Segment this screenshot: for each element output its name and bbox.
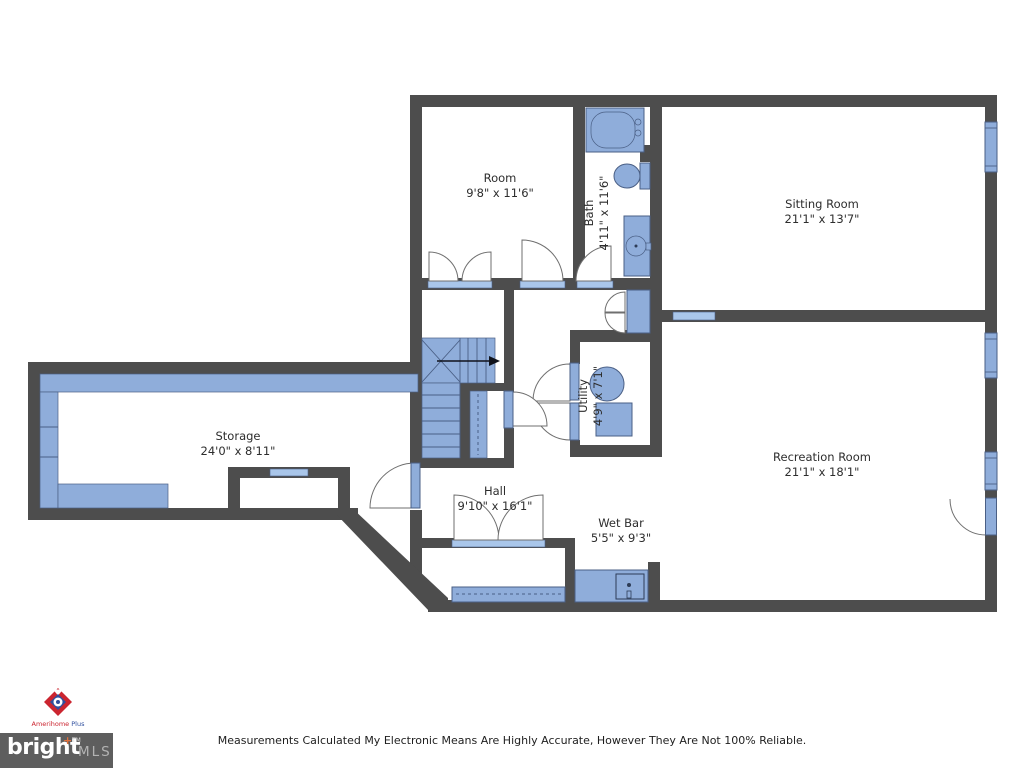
room-label-bath: Bath4'11" x 11'6": [582, 176, 612, 251]
utility-doors: [533, 364, 570, 401]
recreation-window-1: [985, 333, 997, 378]
room-label-storage: Storage24'0" x 8'11": [201, 429, 276, 459]
recreation-window-2: [985, 452, 997, 490]
floor-plan-page: Room9'8" x 11'6" Bath4'11" x 11'6" Sitti…: [0, 0, 1024, 768]
toilet: [614, 163, 650, 189]
diagonal-wall: [336, 508, 448, 612]
agency-logo: Amerihome Plus: [30, 686, 86, 728]
amerihome-plus-icon: [30, 686, 86, 718]
recreation-exterior-door-swing: [950, 499, 986, 535]
room-label-sitting-room: Sitting Room21'1" x 13'7": [785, 197, 860, 227]
room-label-hall: Hall9'10" x 16'1": [458, 484, 533, 514]
under-stair-closet: [470, 391, 487, 458]
room-label-room: Room9'8" x 11'6": [466, 171, 534, 201]
linen-closet-shelf: [627, 290, 650, 333]
room-label-recreation-room: Recreation Room21'1" x 18'1": [773, 450, 871, 480]
room-door: [522, 240, 563, 281]
bathtub: [586, 108, 644, 152]
room-label-utility: Utility4'9" x 7'1": [576, 366, 606, 426]
bath-vanity-sink: [624, 216, 651, 276]
wet-bar-counter: [575, 570, 648, 602]
workbench-counter: [452, 587, 565, 602]
recreation-exterior-door: [986, 498, 997, 535]
storage-door: [370, 463, 415, 508]
linen-closet-doors: [605, 292, 625, 312]
sitting-room-opening: [673, 312, 715, 320]
room-label-wet-bar: Wet Bar5'5" x 9'3": [591, 516, 651, 546]
floor-plan-drawing: [0, 0, 1024, 768]
sitting-room-window: [985, 122, 997, 172]
agency-name: Amerihome Plus: [30, 720, 86, 728]
room-double-door: [429, 252, 458, 281]
measurement-disclaimer: Measurements Calculated My Electronic Me…: [0, 734, 1024, 747]
